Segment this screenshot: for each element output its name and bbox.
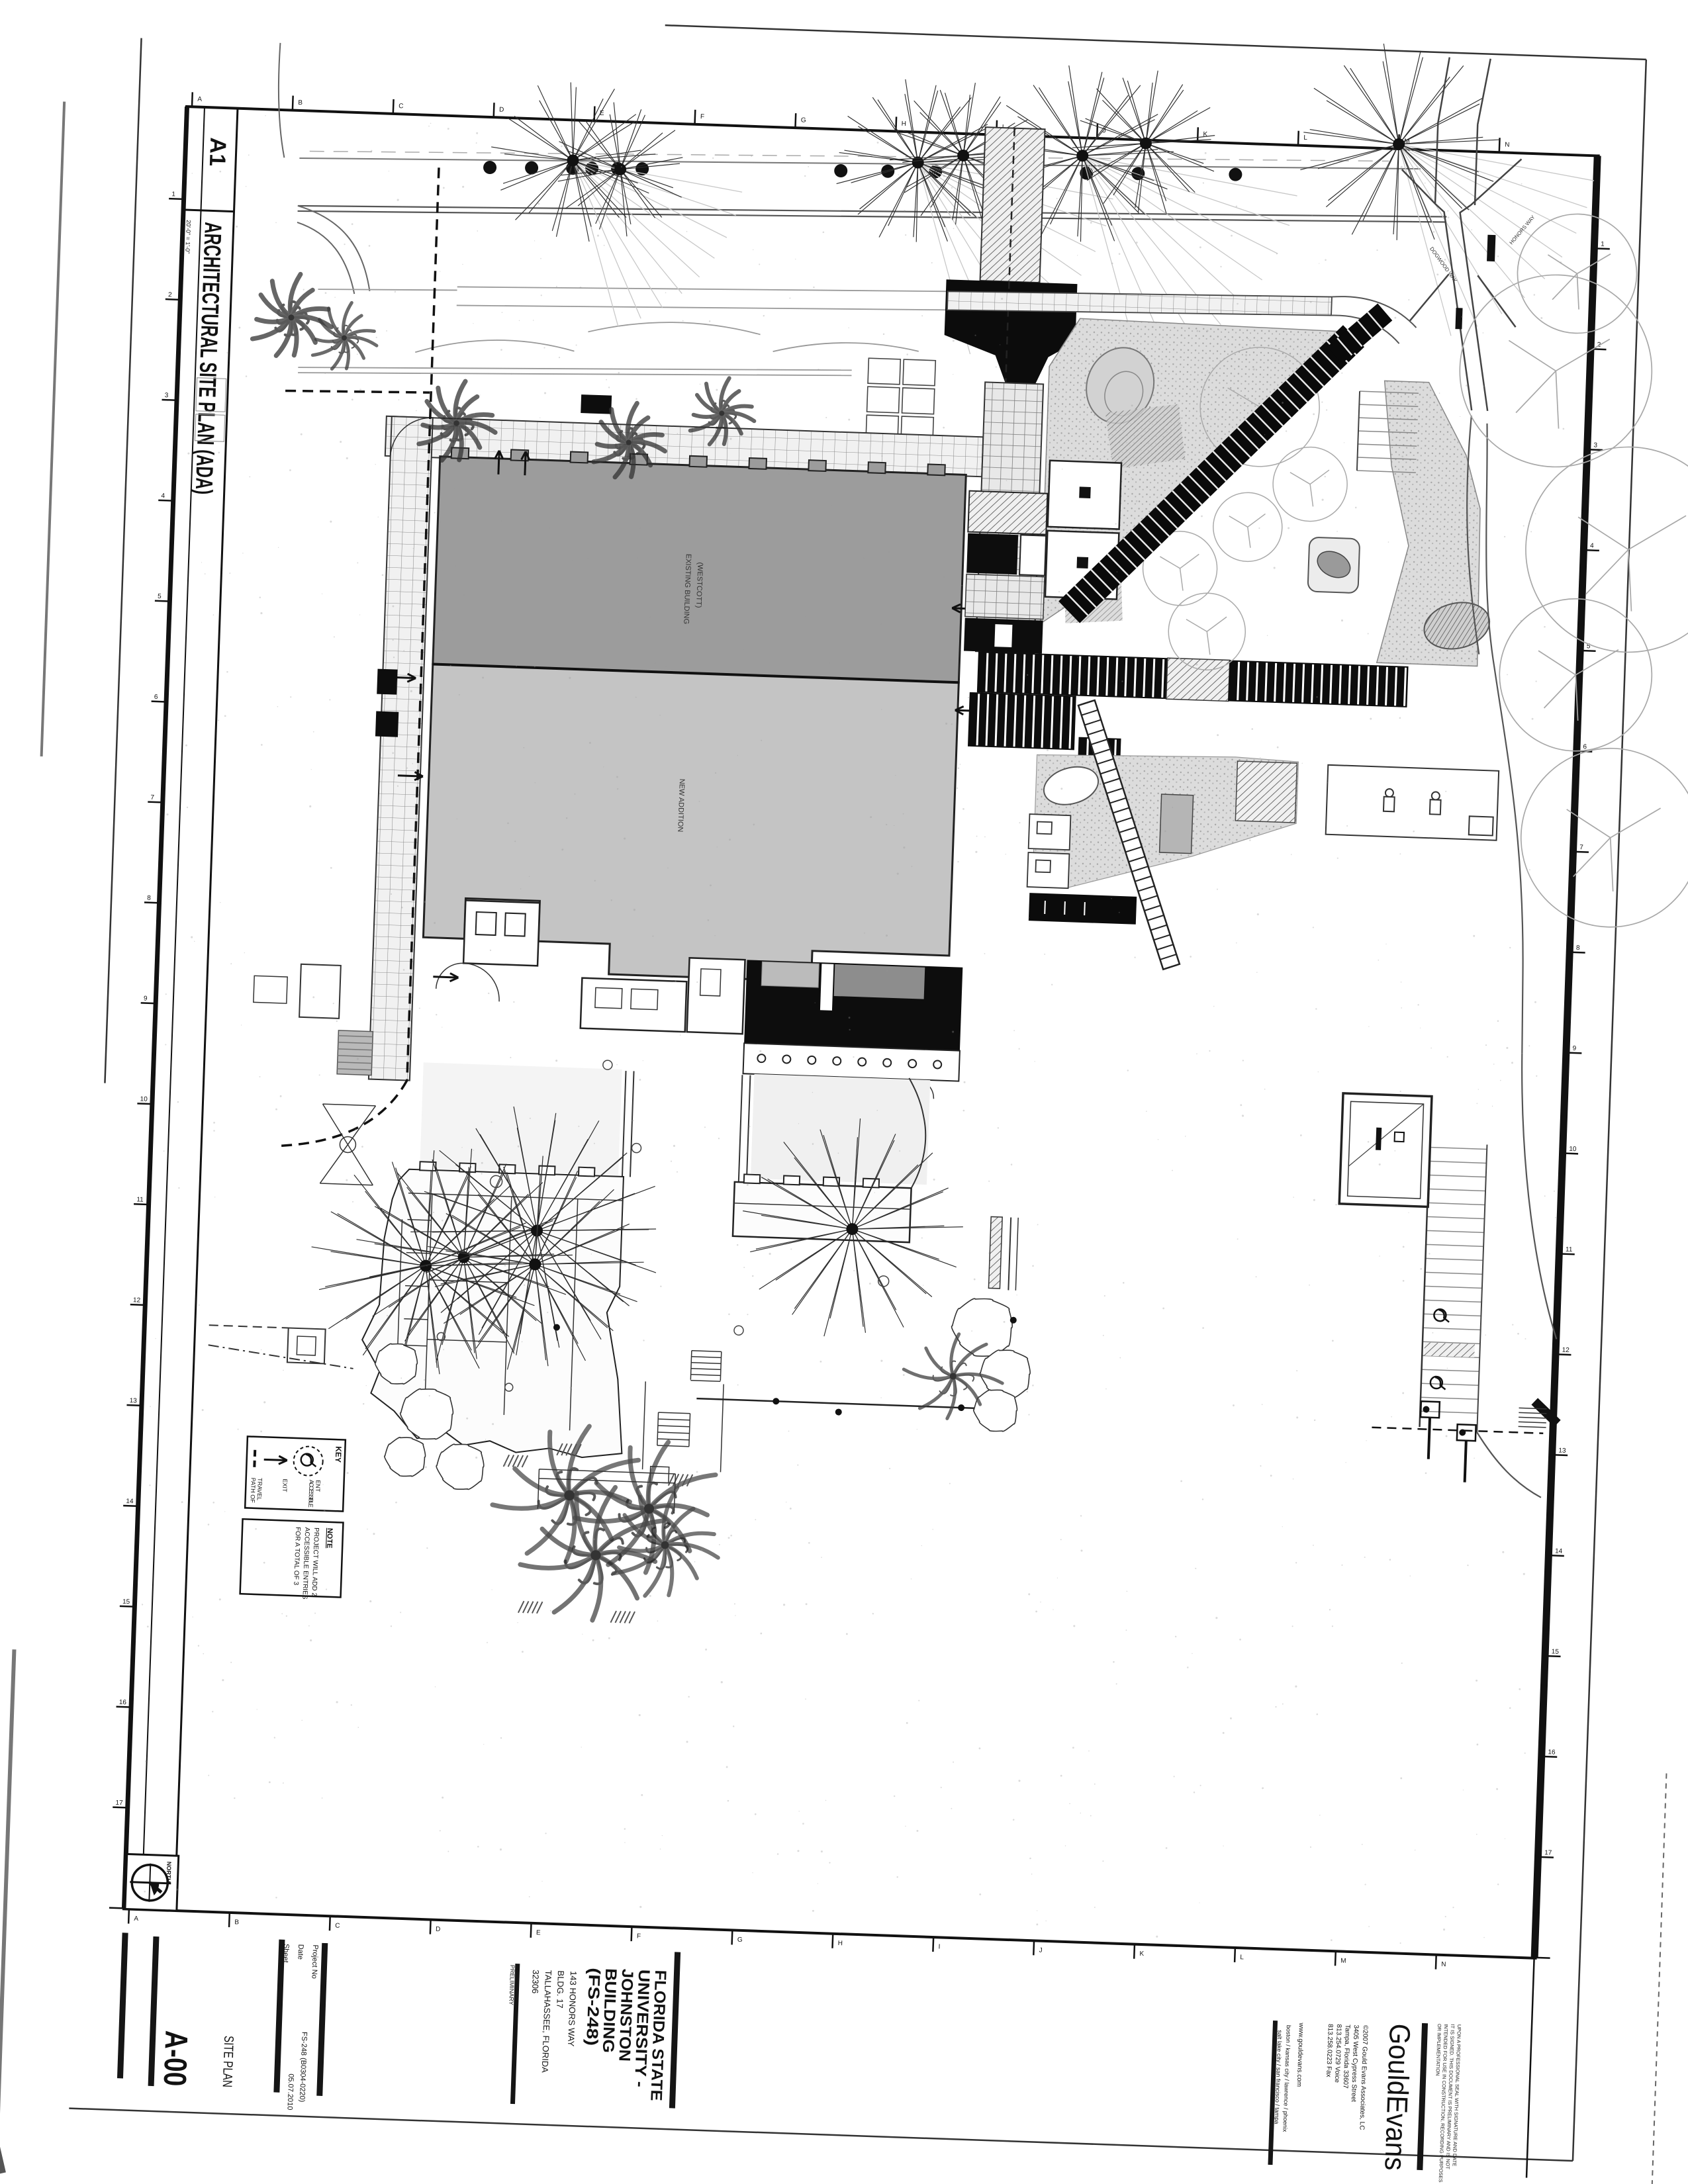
svg-text:N: N — [1505, 142, 1510, 149]
svg-text:F: F — [700, 113, 704, 120]
svg-text:G: G — [737, 1936, 743, 1944]
svg-text:A1: A1 — [205, 137, 230, 167]
svg-text:5: 5 — [158, 593, 162, 600]
svg-text:2: 2 — [168, 291, 172, 298]
svg-text:32306: 32306 — [530, 1970, 541, 1994]
svg-text:SITE PLAN: SITE PLAN — [220, 2036, 236, 2088]
svg-text:12: 12 — [133, 1297, 141, 1304]
svg-text:H: H — [838, 1940, 843, 1947]
svg-text:PATH OF: PATH OF — [249, 1478, 256, 1504]
svg-text:K: K — [1139, 1950, 1144, 1958]
svg-text:8: 8 — [147, 895, 151, 902]
svg-text:F: F — [637, 1933, 641, 1940]
svg-text:9: 9 — [1572, 1045, 1576, 1052]
svg-text:M: M — [1340, 1958, 1346, 1965]
svg-text:14: 14 — [126, 1498, 134, 1505]
svg-text:7: 7 — [1579, 844, 1583, 851]
svg-text:GouldEvans: GouldEvans — [1378, 2023, 1416, 2171]
svg-text:13: 13 — [130, 1397, 138, 1404]
svg-text:L: L — [1240, 1954, 1244, 1961]
svg-text:4: 4 — [161, 492, 165, 500]
svg-text:8: 8 — [1576, 944, 1580, 952]
svg-text:15: 15 — [1552, 1648, 1560, 1655]
svg-text:16: 16 — [1548, 1749, 1556, 1756]
svg-text:20'-0" = 1'-0": 20'-0" = 1'-0" — [184, 220, 192, 253]
svg-text:(WESTCOTT): (WESTCOTT) — [694, 562, 704, 608]
svg-text:13: 13 — [1558, 1447, 1566, 1455]
svg-text:B: B — [298, 99, 303, 107]
svg-text:G: G — [801, 116, 806, 124]
svg-text:L: L — [1303, 134, 1307, 142]
svg-text:1: 1 — [1601, 241, 1605, 248]
svg-text:1: 1 — [171, 191, 175, 198]
svg-text:NORTH: NORTH — [165, 1862, 172, 1883]
svg-text:Date: Date — [296, 1944, 305, 1960]
svg-text:Project No: Project No — [310, 1944, 319, 1979]
svg-text:PRELIMINARY: PRELIMINARY — [508, 1965, 516, 2005]
svg-text:A: A — [197, 96, 202, 103]
svg-text:D: D — [436, 1926, 441, 1933]
svg-text:17: 17 — [115, 1799, 123, 1807]
svg-text:14: 14 — [1555, 1547, 1563, 1555]
svg-text:TRAVEL: TRAVEL — [256, 1478, 263, 1500]
svg-text:6: 6 — [154, 694, 158, 701]
svg-text:B: B — [234, 1919, 239, 1926]
svg-text:11: 11 — [136, 1196, 144, 1203]
svg-text:BLDG. 17: BLDG. 17 — [555, 1970, 566, 2009]
svg-text:A-00: A-00 — [157, 2030, 194, 2087]
svg-text:I: I — [938, 1943, 940, 1950]
svg-text:ENT: ENT — [314, 1480, 322, 1492]
svg-text:4: 4 — [1590, 542, 1594, 549]
svg-text:NOTE: NOTE — [325, 1528, 334, 1549]
svg-text:D: D — [499, 106, 504, 113]
svg-text:7: 7 — [150, 794, 154, 801]
svg-text:3: 3 — [165, 392, 169, 399]
svg-text:C: C — [335, 1923, 340, 1930]
svg-text:N: N — [1441, 1961, 1446, 1968]
svg-text:16: 16 — [119, 1699, 127, 1706]
svg-text:K: K — [1203, 131, 1207, 138]
svg-text:17: 17 — [1544, 1849, 1552, 1856]
svg-text:(FS-248): (FS-248) — [583, 1968, 603, 2046]
svg-text:10: 10 — [1569, 1146, 1577, 1153]
svg-text:Sheet: Sheet — [281, 1944, 290, 1963]
svg-text:A: A — [134, 1915, 138, 1923]
svg-text:ACCESSIBLE: ACCESSIBLE — [307, 1480, 314, 1508]
svg-text:9: 9 — [144, 995, 148, 1003]
svg-text:EXIT: EXIT — [281, 1479, 289, 1492]
svg-text:J: J — [1039, 1947, 1042, 1954]
svg-text:KEY: KEY — [334, 1446, 344, 1463]
svg-text:05.07.2010: 05.07.2010 — [285, 2073, 295, 2110]
svg-text:3: 3 — [1593, 441, 1597, 449]
svg-text:H: H — [902, 120, 907, 128]
svg-text:10: 10 — [140, 1095, 148, 1103]
svg-text:E: E — [536, 1929, 541, 1936]
svg-text:11: 11 — [1566, 1246, 1573, 1253]
svg-text:15: 15 — [122, 1598, 130, 1606]
svg-text:12: 12 — [1562, 1347, 1570, 1354]
svg-text:C: C — [399, 103, 404, 110]
